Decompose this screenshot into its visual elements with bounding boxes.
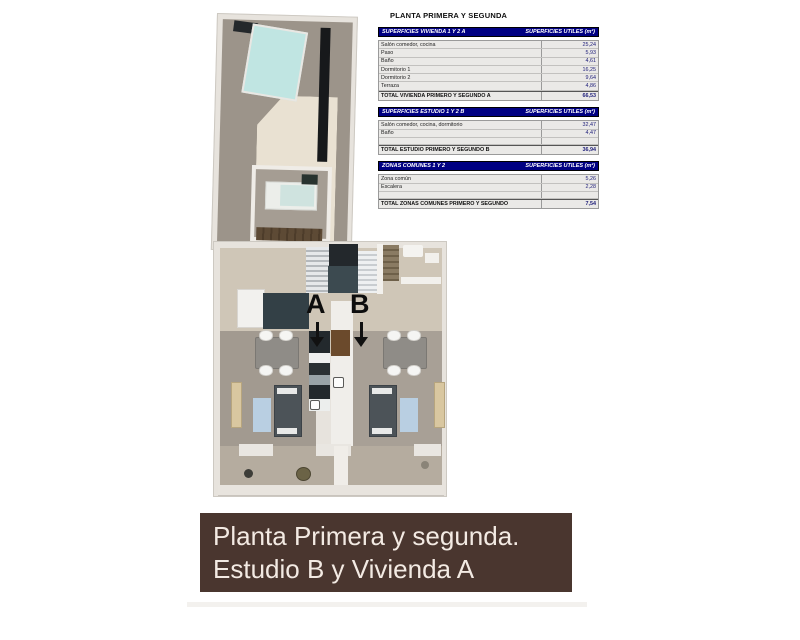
row-value: 2,28 [541, 184, 598, 191]
row-label: Baño [379, 58, 541, 65]
table-header-right: SUPERFICIES UTILES (m²) [525, 163, 595, 169]
terrace-sunbed [241, 23, 308, 101]
balcony-wall [414, 444, 441, 456]
corridor-floor [331, 301, 353, 447]
row-value: 5,93 [541, 49, 598, 56]
row-label: Dormitorio 2 [379, 74, 541, 81]
dining-chair [279, 365, 293, 376]
upper-wing [211, 13, 358, 254]
row-label: Terraza [379, 82, 541, 89]
table-body: Zona común 5,26 Escalera 2,28 TOTAL ZONA… [378, 174, 599, 209]
table-header-left: ZONAS COMUNES 1 Y 2 [382, 163, 445, 169]
dark-floor-patch [263, 293, 309, 329]
table-row: Salón comedor, cocina, dormitorio 32,47 [379, 121, 598, 129]
dining-chair [259, 330, 273, 341]
unit-a-label: A [306, 291, 326, 318]
project-banner: Planta Primera y segunda. Estudio B y Vi… [200, 513, 572, 592]
table-header-left: SUPERFICIES ESTUDIO 1 Y 2 B [382, 109, 464, 115]
sofa-b [369, 385, 397, 437]
dining-chair [279, 330, 293, 341]
table-row: Salón comedor, cocina 25,24 [379, 41, 598, 49]
row-label: Baño [379, 130, 541, 137]
appliance-icon [310, 400, 320, 410]
table-row: Baño 4,61 [379, 58, 598, 66]
rug-b [400, 398, 418, 432]
shelf [401, 277, 441, 284]
table-header-right: SUPERFICIES UTILES (m²) [525, 109, 595, 115]
table-row: Paso 5,93 [379, 49, 598, 57]
dining-table-b [383, 337, 427, 369]
dining-chair [407, 330, 421, 341]
sofa-a [274, 385, 302, 437]
row-label: Dormitorio 1 [379, 66, 541, 73]
total-value: 7,54 [541, 200, 598, 209]
entry-door-b [331, 330, 350, 356]
side-door-b [434, 382, 445, 428]
total-label: TOTAL VIVIENDA PRIMERO Y SEGUNDO A [379, 92, 541, 101]
table-header: ZONAS COMUNES 1 Y 2 SUPERFICIES UTILES (… [378, 161, 599, 171]
table-total-row: TOTAL VIVIENDA PRIMERO Y SEGUNDO A 66,53 [379, 91, 598, 101]
row-value: 5,26 [541, 175, 598, 182]
bed [265, 181, 318, 210]
lower-wing [213, 241, 447, 497]
table-row: Escalera 2,28 [379, 184, 598, 192]
total-value: 36,94 [541, 146, 598, 155]
table-row: Baño 4,47 [379, 130, 598, 138]
bath-fixture [403, 245, 423, 257]
row-label: Salón comedor, cocina, dormitorio [379, 121, 541, 128]
table-header-left: SUPERFICIES VIVIENDA 1 Y 2 A [382, 29, 465, 35]
plant-pot-icon [296, 467, 311, 481]
dining-table-a [255, 337, 299, 369]
total-value: 66,53 [541, 92, 598, 101]
row-value: 25,24 [541, 41, 598, 48]
row-value: 4,86 [541, 82, 598, 89]
row-value: 9,64 [541, 74, 598, 81]
table-estudio-b: SUPERFICIES ESTUDIO 1 Y 2 B SUPERFICIES … [378, 107, 599, 155]
table-spacer-row [379, 138, 598, 145]
wardrobe [256, 227, 322, 242]
total-label: TOTAL ESTUDIO PRIMERO Y SEGUNDO B [379, 146, 541, 155]
row-value: 4,47 [541, 130, 598, 137]
total-label: TOTAL ZONAS COMUNES PRIMERO Y SEGUNDO [379, 200, 541, 209]
table-header: SUPERFICIES VIVIENDA 1 Y 2 A SUPERFICIES… [378, 27, 599, 37]
table-total-row: TOTAL ESTUDIO PRIMERO Y SEGUNDO B 36,94 [379, 145, 598, 155]
table-row: Terraza 4,86 [379, 82, 598, 90]
table-zonas-comunes: ZONAS COMUNES 1 Y 2 SUPERFICIES UTILES (… [378, 161, 599, 209]
unit-b-arrow-icon [360, 322, 363, 337]
wood-stair [383, 245, 399, 281]
table-row: Zona común 5,26 [379, 175, 598, 183]
dining-chair [407, 365, 421, 376]
staircase-right [358, 251, 377, 293]
page: A B PLANTA PRIMERA Y SEGUNDA SUPERFICIES… [0, 0, 800, 640]
balcony-wall [239, 444, 273, 456]
side-door-a [231, 382, 242, 428]
plant-pot-icon [244, 469, 253, 478]
unit-a-arrow-icon [316, 322, 319, 337]
balcony-divider [334, 446, 348, 488]
row-value: 32,47 [541, 121, 598, 128]
table-body: Salón comedor, cocina, dormitorio 32,47 … [378, 120, 599, 155]
banner-line1: Planta Primera y segunda. [213, 520, 572, 553]
table-total-row: TOTAL ZONAS COMUNES PRIMERO Y SEGUNDO 7,… [379, 199, 598, 209]
row-label: Zona común [379, 175, 541, 182]
dining-chair [387, 365, 401, 376]
table-body: Salón comedor, cocina 25,24 Paso 5,93 Ba… [378, 40, 599, 101]
row-label: Salón comedor, cocina [379, 41, 541, 48]
unit-b-label: B [350, 291, 370, 318]
dining-chair [387, 330, 401, 341]
bed-cover [280, 185, 315, 207]
table-row: Dormitorio 2 9,64 [379, 74, 598, 82]
row-value: 4,61 [541, 58, 598, 65]
row-label: Paso [379, 49, 541, 56]
cabinet [425, 253, 439, 263]
dining-chair [259, 365, 273, 376]
stair-landing-upper [329, 244, 358, 268]
rug-a [253, 398, 271, 432]
nightstand [302, 174, 318, 184]
tables-title: PLANTA PRIMERA Y SEGUNDA [390, 11, 599, 20]
closet [237, 289, 265, 328]
row-value: 16,25 [541, 66, 598, 73]
table-header: SUPERFICIES ESTUDIO 1 Y 2 B SUPERFICIES … [378, 107, 599, 117]
table-header-right: SUPERFICIES UTILES (m²) [525, 29, 595, 35]
table-row: Dormitorio 1 16,25 [379, 66, 598, 74]
plant-pot-icon [421, 461, 429, 469]
appliance-icon [333, 377, 344, 388]
surface-tables: PLANTA PRIMERA Y SEGUNDA SUPERFICIES VIV… [378, 11, 599, 215]
table-vivienda-a: SUPERFICIES VIVIENDA 1 Y 2 A SUPERFICIES… [378, 27, 599, 101]
banner-shadow [187, 602, 587, 607]
bottom-wall [218, 485, 444, 496]
banner-line2: Estudio B y Vivienda A [213, 553, 572, 586]
table-spacer-row [379, 192, 598, 199]
row-label: Escalera [379, 184, 541, 191]
